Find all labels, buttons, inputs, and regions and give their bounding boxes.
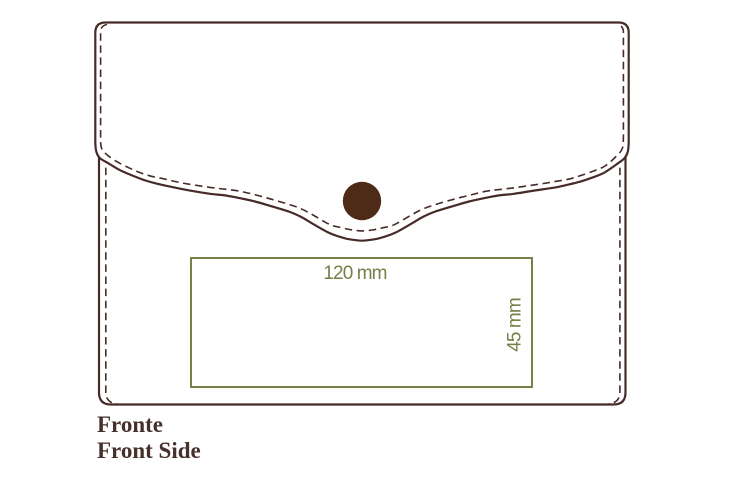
svg-text:45 mm: 45 mm bbox=[505, 298, 526, 352]
svg-text:120 mm: 120 mm bbox=[323, 263, 386, 284]
